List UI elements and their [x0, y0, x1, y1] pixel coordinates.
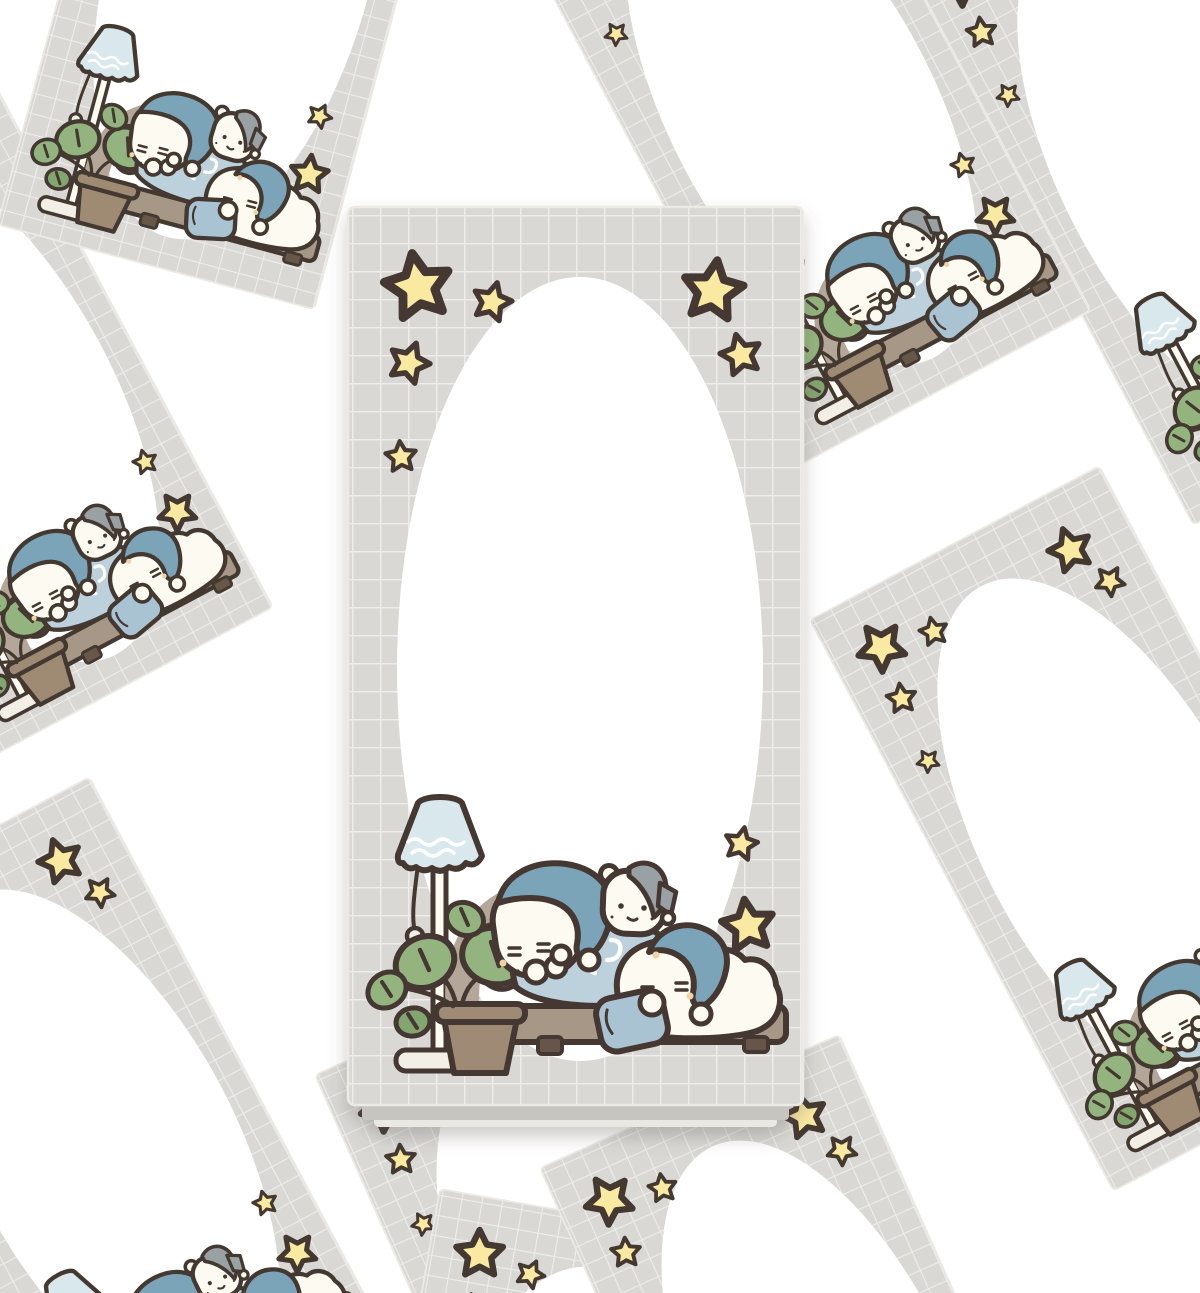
- scene: [0, 0, 1200, 1293]
- memo-pad: [348, 207, 803, 1127]
- memo-pad-top-sheet: [348, 207, 803, 1105]
- product-scene: [0, 0, 1200, 1293]
- background-sheet: [810, 466, 1200, 1191]
- background-sheet: [0, 777, 393, 1293]
